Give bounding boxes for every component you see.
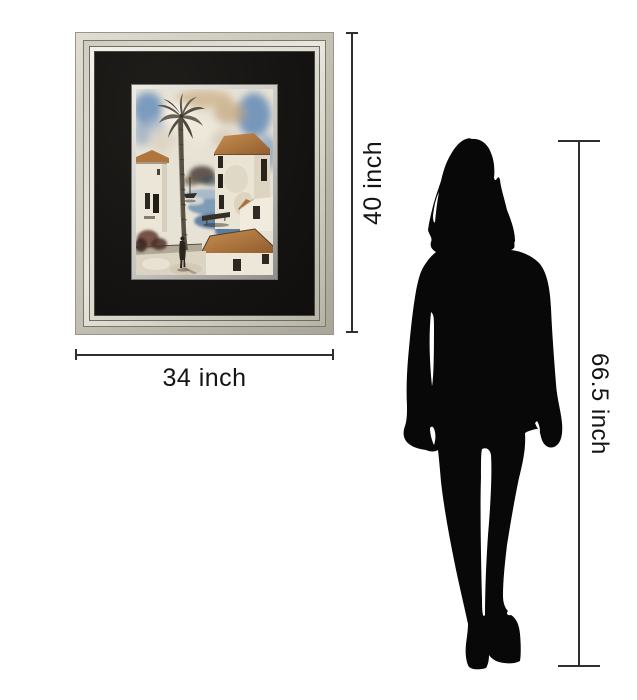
dimension-tick — [346, 331, 358, 333]
silver-fillet — [131, 84, 278, 280]
standing-woman-silhouette — [398, 136, 570, 672]
person-height-label: 66.5 inch — [587, 140, 611, 667]
person-height-dimension: 66.5 inch — [558, 140, 633, 667]
dimension-tick — [75, 349, 77, 360]
frame-width-dimension-line — [75, 354, 334, 356]
woman-silhouette-shape — [404, 138, 563, 669]
frame-width-dimension: 34 inch — [75, 348, 334, 396]
frame-height-dimension-line — [351, 32, 353, 333]
person-height-dimension-line — [578, 140, 580, 667]
size-comparison-diagram: 40 inch 34 inch 66.5 inch — [0, 0, 637, 700]
black-mat — [94, 51, 315, 316]
frame-height-label: 40 inch — [361, 32, 386, 333]
frame-width-label: 34 inch — [75, 366, 334, 391]
frame-inner-lip — [89, 46, 320, 321]
mediterranean-harbor-painting — [136, 89, 273, 275]
dimension-tick — [332, 349, 334, 360]
dimension-tick — [346, 32, 358, 34]
frame-groove — [83, 40, 326, 327]
painting-left-building — [136, 150, 169, 232]
framed-artwork — [75, 32, 334, 335]
